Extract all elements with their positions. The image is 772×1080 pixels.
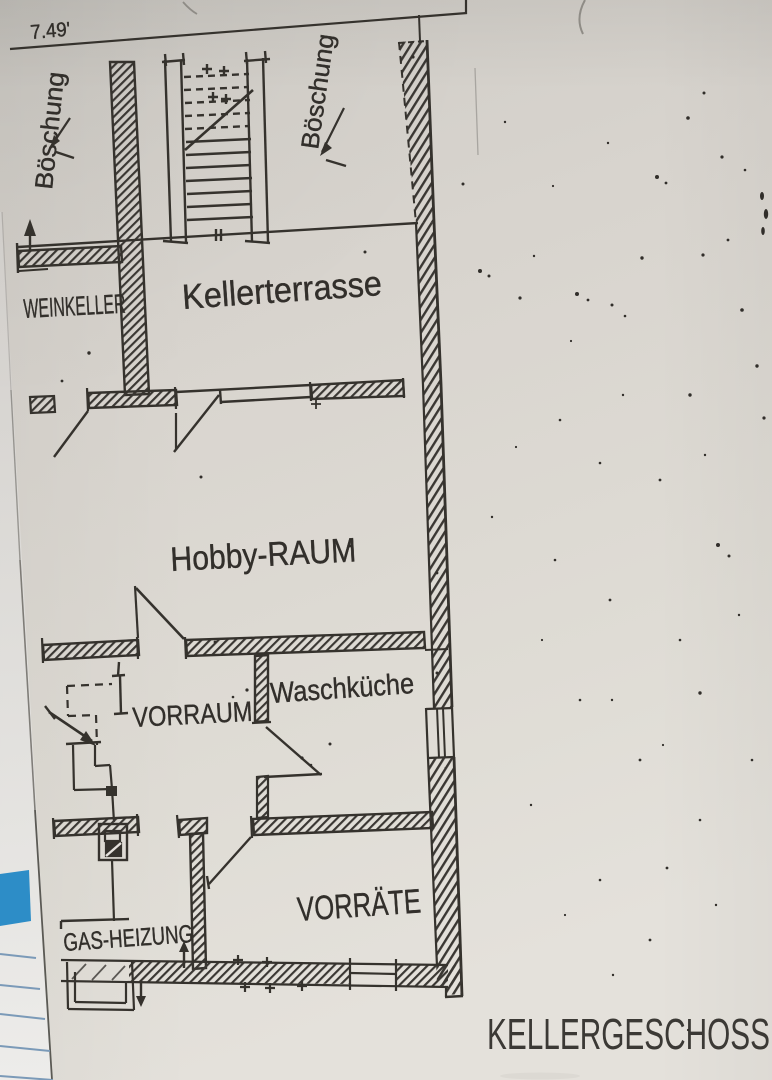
svg-text:VORRAUM: VORRAUM [132, 696, 253, 733]
svg-text:7.49': 7.49' [30, 19, 72, 44]
svg-text:WEINKELLER: WEINKELLER [23, 289, 126, 324]
svg-text:KELLERGESCHOSS: KELLERGESCHOSS [487, 1010, 770, 1059]
